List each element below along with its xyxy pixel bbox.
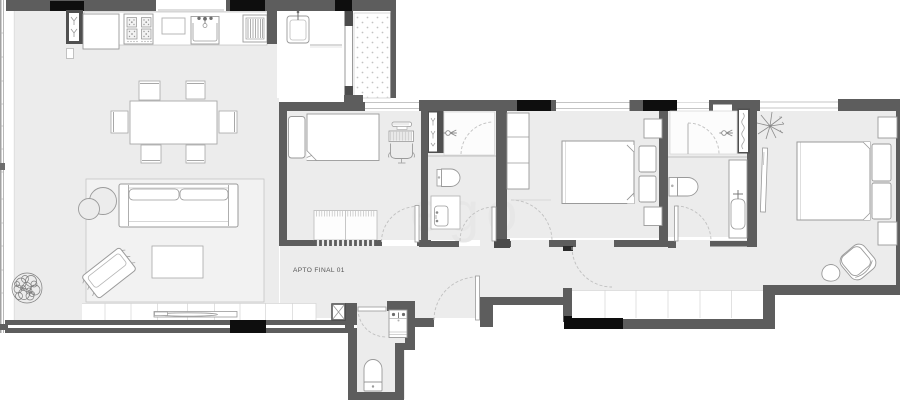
svg-text:APTO FINAL 01: APTO FINAL 01 <box>293 267 345 274</box>
